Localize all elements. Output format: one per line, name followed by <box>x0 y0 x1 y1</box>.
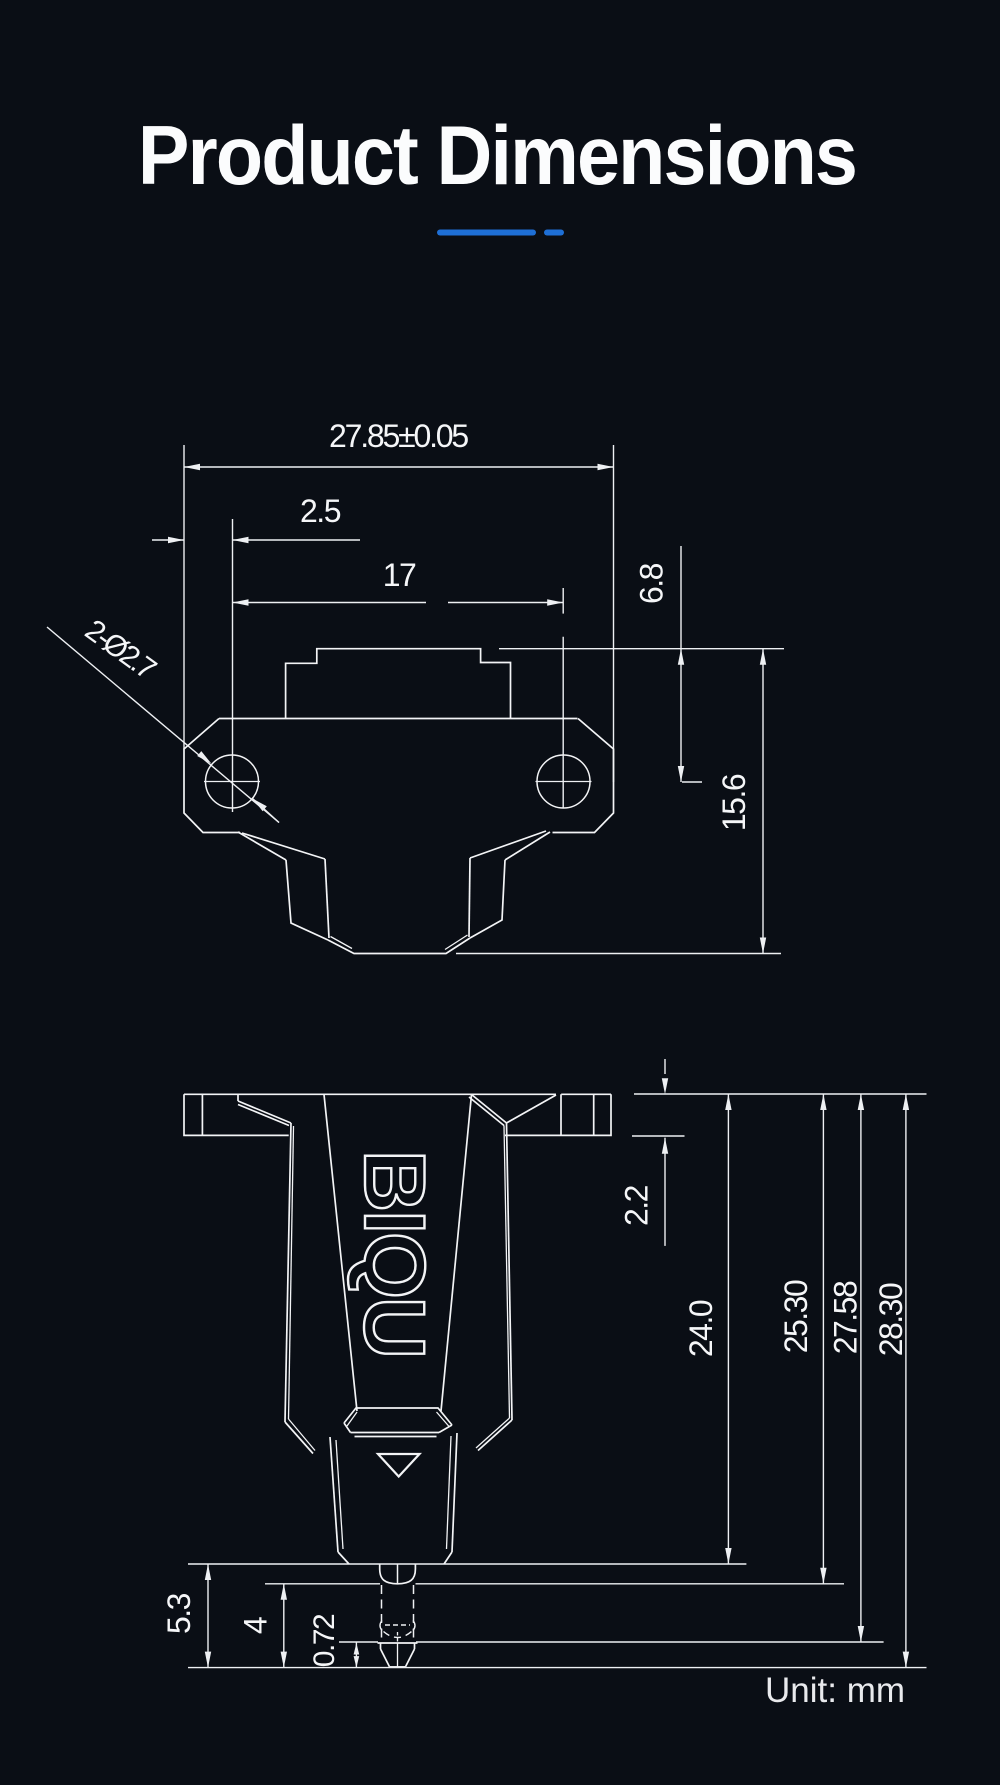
svg-text:BIQU: BIQU <box>346 1150 442 1357</box>
svg-text:24.0: 24.0 <box>683 1300 719 1357</box>
svg-text:4: 4 <box>238 1617 274 1634</box>
svg-text:25.30: 25.30 <box>778 1280 814 1353</box>
svg-text:2.2: 2.2 <box>619 1185 655 1226</box>
svg-text:2.5: 2.5 <box>300 493 341 529</box>
svg-text:0.72: 0.72 <box>308 1614 341 1667</box>
svg-text:15.6: 15.6 <box>716 774 752 831</box>
svg-text:27.85±0.05: 27.85±0.05 <box>329 418 468 454</box>
svg-text:28.30: 28.30 <box>873 1283 909 1356</box>
svg-text:Product Dimensions: Product Dimensions <box>138 109 856 203</box>
svg-text:6.8: 6.8 <box>634 563 670 604</box>
svg-text:27.58: 27.58 <box>828 1281 864 1354</box>
svg-text:5.3: 5.3 <box>161 1593 197 1634</box>
svg-text:17: 17 <box>383 557 416 593</box>
svg-text:Unit: mm: Unit: mm <box>765 1671 905 1710</box>
